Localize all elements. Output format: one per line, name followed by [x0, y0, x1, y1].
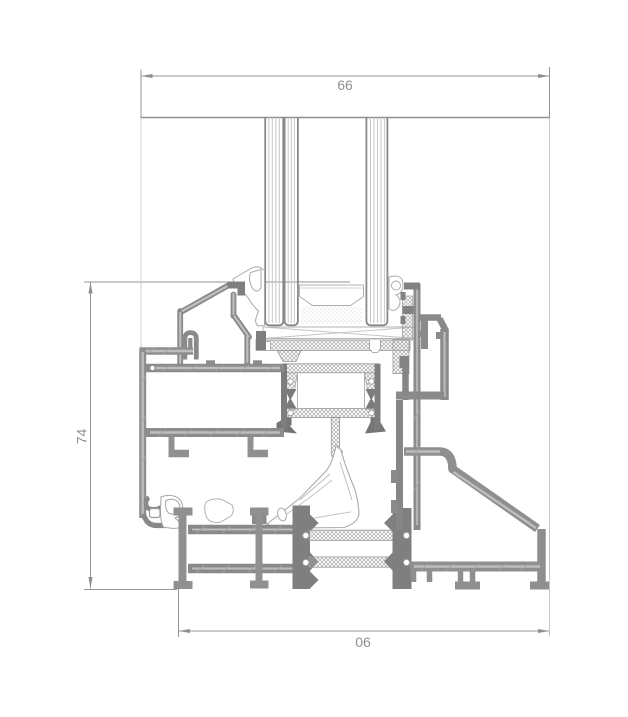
svg-text:74: 74 [74, 429, 90, 445]
svg-text:66: 66 [337, 77, 353, 93]
svg-text:06: 06 [355, 634, 371, 650]
